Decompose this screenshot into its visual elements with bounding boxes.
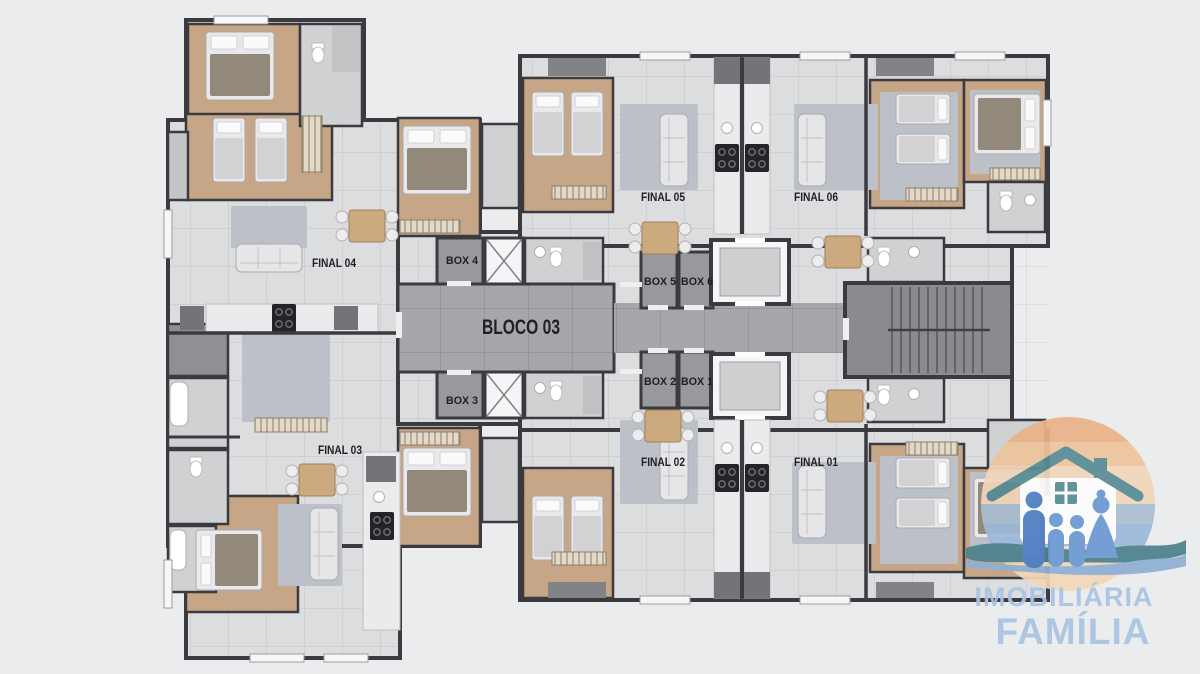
label-box-4: BOX 4 [446, 255, 479, 267]
logo-text-line1: IMOBILIÁRIA [975, 581, 1154, 612]
stairwell [845, 283, 1012, 377]
label-box-2: BOX 2 [644, 376, 676, 388]
floor-plan-svg: BLOCO 03 FINAL 04 FINAL 05 FINAL 06 FINA… [0, 0, 1200, 674]
label-final-05: FINAL 05 [641, 190, 685, 204]
label-final-03: FINAL 03 [318, 443, 362, 457]
label-final-04: FINAL 04 [312, 256, 356, 270]
label-box-3: BOX 3 [446, 395, 478, 407]
label-box-6: BOX 6 [681, 276, 713, 288]
label-final-01: FINAL 01 [794, 455, 838, 469]
label-bloco-03: BLOCO 03 [482, 316, 560, 339]
floor-plan-screenshot: BLOCO 03 FINAL 04 FINAL 05 FINAL 06 FINA… [0, 0, 1200, 674]
label-box-1: BOX 1 [681, 376, 713, 388]
label-final-06: FINAL 06 [794, 190, 838, 204]
label-final-02: FINAL 02 [641, 455, 685, 469]
logo-text-line2: FAMÍLIA [996, 611, 1151, 652]
label-box-5: BOX 5 [644, 276, 676, 288]
house-window-icon [1055, 482, 1077, 504]
